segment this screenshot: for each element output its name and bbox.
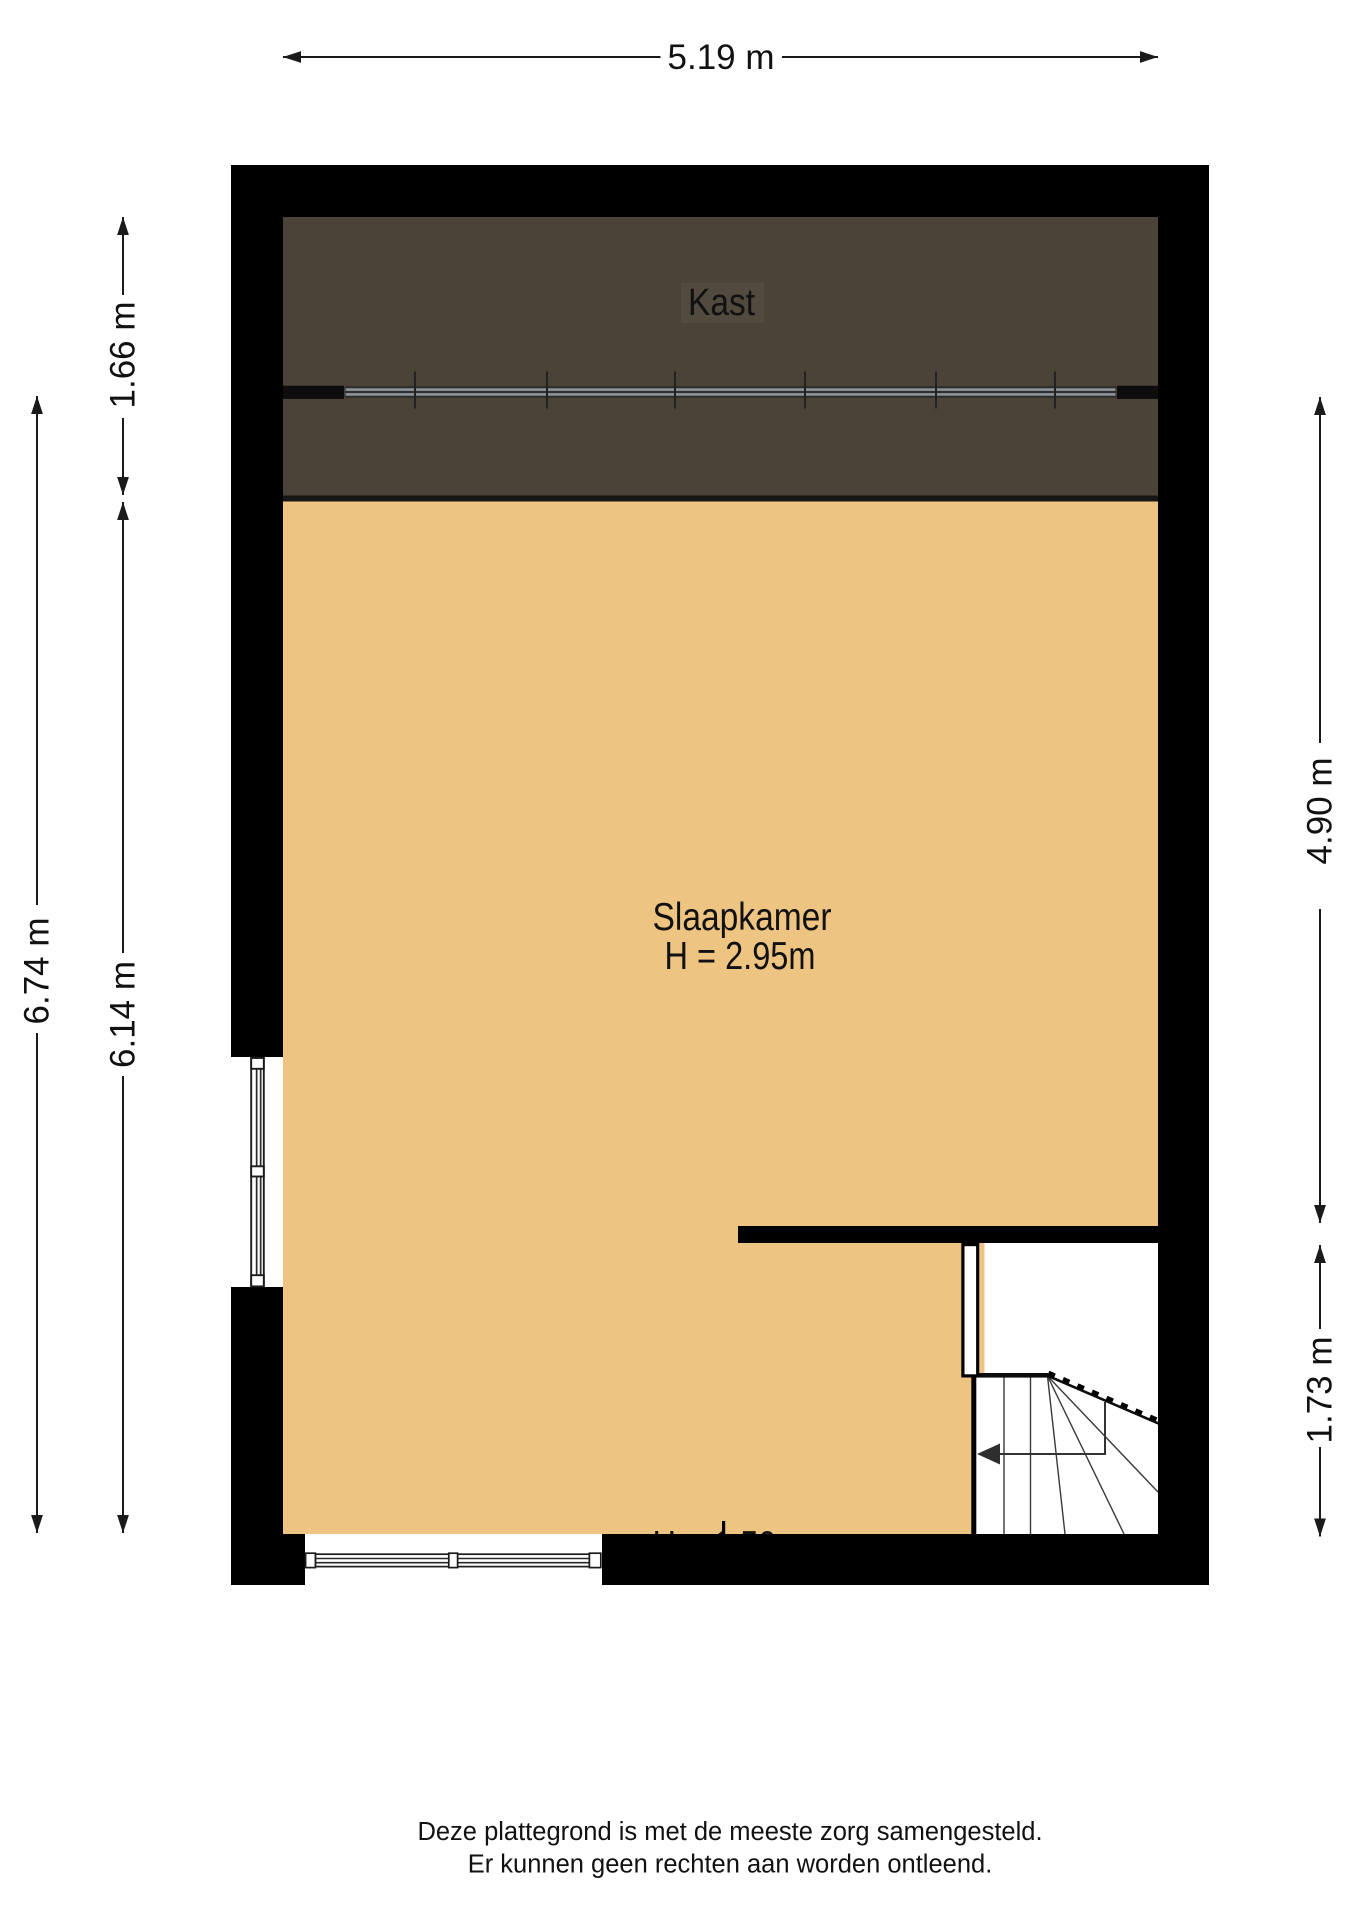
svg-text:6.14 m: 6.14 m <box>104 961 143 1068</box>
svg-text:Deze plattegrond is met de mee: Deze plattegrond is met de meeste zorg s… <box>417 1818 1042 1846</box>
svg-text:Er kunnen geen rechten aan wor: Er kunnen geen rechten aan worden ontlee… <box>468 1851 993 1879</box>
svg-text:Slaapkamer: Slaapkamer <box>653 896 832 939</box>
svg-text:1.73 m: 1.73 m <box>1301 1337 1340 1444</box>
svg-text:6.74 m: 6.74 m <box>18 918 57 1025</box>
svg-text:H = 2.95m: H = 2.95m <box>665 935 816 978</box>
svg-text:1.66 m: 1.66 m <box>104 302 143 409</box>
svg-text:5.19 m: 5.19 m <box>668 38 775 77</box>
svg-text:4.90 m: 4.90 m <box>1301 758 1340 865</box>
svg-text:Kast: Kast <box>688 282 755 324</box>
